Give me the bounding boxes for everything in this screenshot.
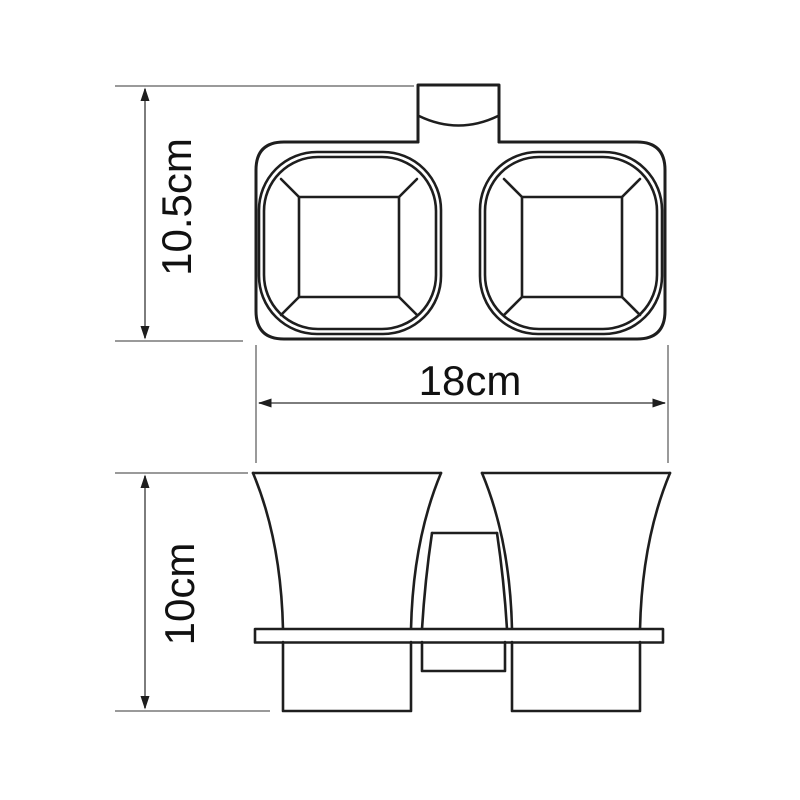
center-post [422, 533, 507, 629]
right-tumbler-lower [512, 642, 640, 711]
top-view [256, 85, 665, 339]
right-tumbler-outer-side [640, 473, 670, 629]
left-cup-opening [259, 152, 441, 334]
right-tumbler [482, 473, 670, 629]
arrowhead-down [141, 696, 150, 710]
right-opening-bevel-bl [504, 297, 522, 315]
left-tumbler-inner-side [411, 473, 441, 629]
holder-body [256, 142, 665, 339]
left-opening-bevel-bl [281, 297, 299, 315]
left-tumbler [253, 473, 441, 629]
right-opening-inner-ring [485, 157, 657, 329]
right-opening-outer-ring [480, 152, 662, 334]
arrowhead-left [258, 399, 272, 408]
dimension-front-view-height: 10cm [115, 473, 270, 711]
mounting-tab-arc [419, 116, 498, 126]
left-opening-outer-ring [259, 152, 441, 334]
left-opening-bevel-br [399, 297, 417, 315]
left-opening-bevel-tr [399, 179, 417, 197]
holder-bar [255, 629, 663, 643]
left-opening-inner-square [299, 197, 399, 297]
dimension-drawing: 10.5cm 18cm 10cm [0, 0, 800, 800]
dimension-label-18cm: 18cm [419, 357, 522, 404]
dimension-label-10cm: 10cm [156, 543, 203, 646]
left-opening-inner-ring [264, 157, 436, 329]
right-opening-inner-square [522, 197, 622, 297]
center-post-left-edge [422, 533, 432, 629]
arrowhead-up [141, 475, 150, 489]
center-post-lower [422, 642, 505, 671]
arrowhead-up [141, 88, 150, 102]
mounting-tab [418, 85, 499, 142]
left-tumbler-outer-side [253, 473, 283, 629]
right-cup-opening [480, 152, 662, 334]
dimension-overall-width: 18cm [256, 345, 668, 463]
left-opening-bevel-tl [281, 179, 299, 197]
left-tumbler-lower [283, 642, 411, 711]
front-view [253, 473, 670, 711]
dimension-label-10-5cm: 10.5cm [153, 138, 200, 276]
center-post-right-edge [497, 533, 507, 629]
drawing-canvas: 10.5cm 18cm 10cm [0, 0, 800, 800]
right-tumbler-inner-side [482, 473, 512, 629]
right-opening-bevel-br [622, 297, 640, 315]
right-opening-bevel-tr [622, 179, 640, 197]
arrowhead-down [141, 326, 150, 340]
arrowhead-right [653, 399, 667, 408]
right-opening-bevel-tl [504, 179, 522, 197]
